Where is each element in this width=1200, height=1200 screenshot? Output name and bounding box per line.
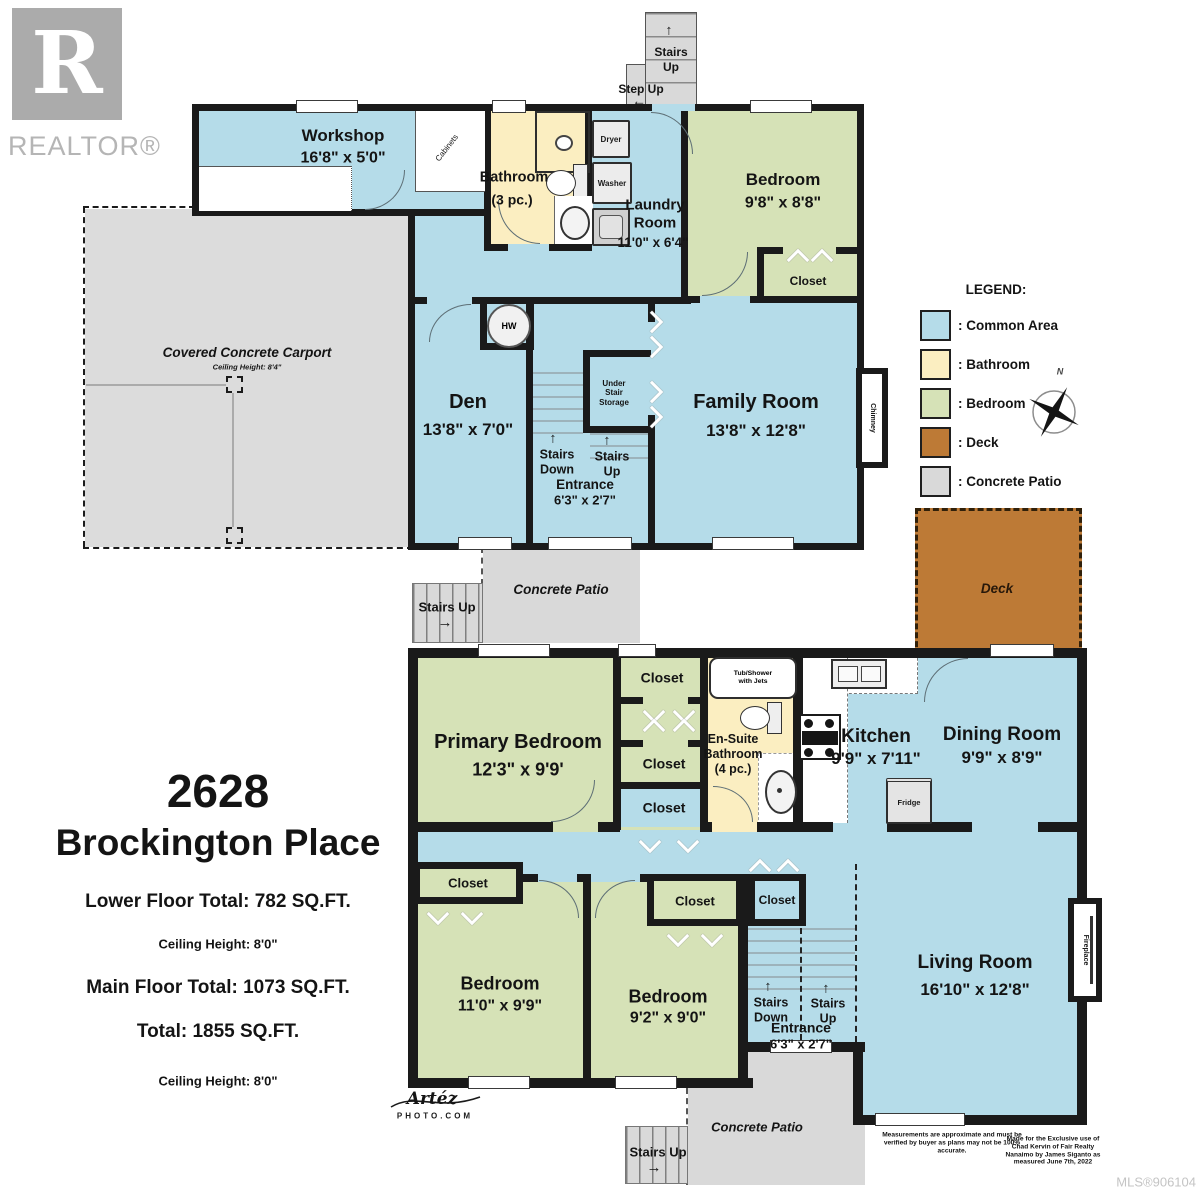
right-arrow-icon: → [647, 1159, 662, 1177]
sink-basin [838, 666, 858, 682]
carport-guide-line-h [86, 384, 232, 386]
hot-water-tank-icon: HW [487, 304, 531, 348]
window [296, 100, 358, 113]
den-label: Den [449, 391, 487, 415]
address-street: Brockington Place [56, 821, 381, 865]
door-opening [427, 297, 472, 304]
living-room-dims: 16'10" x 12'8" [920, 980, 1029, 1000]
carport-dash-bottom [83, 544, 413, 549]
stairs-down-treads [533, 372, 583, 444]
photo-credit-logo: Artéz PHOTO.COM [388, 1090, 483, 1124]
closet-label: Closet [675, 893, 715, 908]
up-arrow-icon: ↑ [666, 22, 673, 39]
window [990, 644, 1054, 657]
wall [408, 1078, 753, 1088]
carport-post [226, 376, 243, 393]
lower-stairs-down-label: Down [540, 463, 574, 478]
legend-swatch-deck [920, 427, 951, 458]
sink-icon [560, 206, 590, 240]
bathroom-label: Bathroom [480, 169, 548, 186]
wall [757, 247, 764, 303]
fridge-icon: Fridge [886, 778, 932, 824]
main-patio-recess [748, 1052, 858, 1095]
wall [408, 297, 427, 304]
legend-label-common: : Common Area [958, 318, 1058, 334]
upper-stairs-label: Stairs [654, 45, 687, 59]
wall [598, 822, 620, 832]
window [468, 1076, 530, 1089]
bedroom2-label: Bedroom [460, 973, 539, 994]
toilet-bowl-icon [740, 706, 770, 730]
lower-stairs-label: Stairs [595, 450, 630, 465]
dining-room-dims: 9'9" x 8'9" [962, 748, 1043, 768]
lower-bedroom-dims: 9'8" x 8'8" [745, 195, 821, 214]
compass-icon [1022, 378, 1086, 442]
wall [1038, 822, 1087, 832]
wall [853, 1048, 863, 1125]
carport-dash-left [83, 207, 88, 547]
legend-label-patio: : Concrete Patio [958, 474, 1062, 490]
dryer-icon: Dryer [592, 120, 630, 158]
lower-patio-label: Concrete Patio [513, 582, 608, 598]
lower-floor-total: Lower Floor Total: 782 SQ.FT. [85, 891, 351, 913]
main-stairs-label: Stairs [811, 997, 846, 1012]
lower-closet-label: Closet [790, 274, 827, 288]
workshop-dims: 16'8" x 5'0" [300, 150, 385, 169]
family-room-label: Family Room [693, 391, 819, 415]
realtor-logo: R [12, 8, 122, 120]
fridge-label: Fridge [898, 798, 921, 807]
lower-bedroom-label: Bedroom [746, 170, 821, 190]
kitchen-label: Kitchen [841, 726, 911, 748]
carport-ceiling-label: Ceiling Height: 8'4" [213, 364, 282, 373]
wall [757, 822, 833, 832]
main-entrance-dims: 6'3" x 2'7" [770, 1036, 832, 1051]
right-arrow-icon: → [438, 614, 453, 632]
lower-ceiling-height: Ceiling Height: 8'0" [158, 936, 277, 951]
realtor-wordmark: REALTOR® [8, 131, 161, 163]
wall [613, 697, 643, 704]
wall [648, 415, 655, 543]
family-room-dims: 13'8" x 12'8" [706, 421, 806, 441]
up-arrow-icon: ↑ [550, 430, 557, 447]
primary-bedroom-label: Primary Bedroom [434, 731, 602, 755]
legend-title: LEGEND: [966, 282, 1027, 298]
tub-label: Tub/Shower with Jets [734, 670, 772, 687]
main-patio-label: Concrete Patio [711, 1119, 803, 1134]
sink-drain-icon [777, 788, 782, 793]
living-room-label: Living Room [917, 952, 1032, 974]
wall [1077, 1000, 1087, 1125]
window [875, 1113, 965, 1126]
wall [688, 697, 708, 704]
stove-burner [804, 748, 813, 757]
door-opening [712, 822, 757, 832]
under-stair-label: Under Stair Storage [599, 379, 629, 407]
fireplace-label: Fireplace [1081, 935, 1089, 966]
floor-plan-canvas: R REALTOR® [0, 0, 1200, 1200]
door-opening [783, 247, 836, 254]
sink-basin [861, 666, 881, 682]
closet-label: Closet [643, 756, 686, 773]
door-opening [700, 296, 750, 303]
wall [408, 822, 553, 832]
main-concrete-patio [688, 1088, 865, 1185]
kitchen-sink-icon [831, 659, 887, 689]
photo-credit-name: Artéz [407, 1089, 457, 1109]
door-opening [652, 104, 695, 111]
door-opening [508, 244, 549, 251]
closet-label: Closet [641, 670, 684, 687]
window [712, 537, 794, 550]
compass-n-label: N [1057, 367, 1064, 378]
window [478, 644, 550, 657]
main-stairs-label: Stairs [754, 996, 789, 1011]
bedroom2-dims: 11'0" x 9'9" [458, 998, 542, 1017]
bedroom3-label: Bedroom [628, 986, 707, 1007]
legend-swatch-patio [920, 466, 951, 497]
window [750, 100, 812, 113]
wall [613, 782, 708, 789]
primary-bedroom-dims: 12'3" x 9'9' [472, 759, 563, 780]
kitchen-dims: 9'9" x 7'11" [831, 749, 920, 769]
wall [836, 247, 864, 254]
disclaimer-right: Made for the Exclusive use of Chad Kervi… [1004, 1135, 1102, 1166]
deck-label: Deck [981, 581, 1013, 597]
door-sill [548, 537, 632, 550]
legend-label-deck: : Deck [958, 435, 999, 451]
wall [1077, 648, 1087, 900]
window [615, 1076, 677, 1089]
carport-guide-line-v [232, 384, 234, 544]
door-opening [553, 822, 598, 832]
legend-label-bathroom: : Bathroom [958, 357, 1030, 373]
photo-credit-url: PHOTO.COM [397, 1111, 473, 1120]
legend-swatch-bathroom [920, 349, 951, 380]
legend-swatch-common [920, 310, 951, 341]
workshop-label: Workshop [302, 126, 385, 146]
laundry-label: Laundry Room [625, 196, 684, 231]
tub-icon: Tub/Shower with Jets [709, 657, 797, 699]
toilet-bowl-icon [546, 170, 576, 196]
shower-drain-icon [555, 135, 573, 151]
carport-dash-top [83, 206, 195, 211]
lower-patio-stairs-label: Stairs Up [418, 599, 475, 614]
wall [700, 822, 712, 832]
carport-label: Covered Concrete Carport [163, 345, 332, 361]
closet-label: Closet [759, 893, 796, 907]
window [458, 537, 512, 550]
stove-burner [825, 719, 834, 728]
main-floor-total: Main Floor Total: 1073 SQ.FT. [86, 977, 350, 999]
realtor-r-icon: R [31, 21, 102, 107]
hw-label: HW [502, 321, 517, 331]
stairwell-edge-dash [855, 864, 859, 1042]
lower-entrance-label: Entrance [556, 477, 614, 493]
up-arrow-icon: ↑ [604, 432, 611, 449]
main-ceiling-height: Ceiling Height: 8'0" [158, 1073, 277, 1088]
lower-patio-dash [481, 547, 486, 585]
upper-stairs-up-label: Up [663, 60, 679, 74]
closet-label: Closet [448, 875, 488, 890]
address-number: 2628 [167, 764, 269, 818]
fireplace-shelf [1090, 916, 1093, 984]
main-entrance-label: Entrance [771, 1020, 831, 1037]
workshop-workbench [199, 166, 352, 211]
laundry-dims: 11'0" x 6'4" [617, 235, 688, 251]
dining-room-label: Dining Room [943, 724, 1061, 746]
stove-burner [804, 719, 813, 728]
up-arrow-icon: ↑ [765, 978, 772, 995]
den-dims: 13'8" x 7'0" [423, 420, 513, 440]
wall [583, 874, 591, 1086]
up-arrow-icon: ↑ [823, 980, 830, 997]
bedroom3-dims: 9'2" x 9'0" [630, 1010, 706, 1029]
bathroom-pc: (3 pc.) [491, 192, 532, 209]
lower-stairs-label: Stairs [540, 448, 575, 463]
carport-post [226, 527, 243, 544]
washer-label: Washer [598, 179, 627, 188]
mls-number: MLS®906104 [1116, 1174, 1196, 1189]
dryer-label: Dryer [601, 135, 622, 144]
left-arrow-icon: ← [632, 93, 646, 110]
ensuite-label: En-Suite Bathroom (4 pc.) [703, 732, 762, 776]
legend-label-bedroom: : Bedroom [958, 396, 1026, 412]
lower-entrance-dims: 6'3" x 2'7" [554, 492, 616, 507]
chimney-label: Chimney [868, 403, 876, 433]
carport-area [85, 209, 410, 547]
stove-band [802, 731, 838, 745]
window [618, 644, 656, 657]
main-patio-stairs-label: Stairs Up [629, 1144, 686, 1159]
closet-label: Closet [643, 800, 686, 817]
wall [613, 740, 643, 747]
window [492, 100, 526, 113]
grand-total: Total: 1855 SQ.FT. [137, 1021, 299, 1043]
legend-swatch-bedroom [920, 388, 951, 419]
